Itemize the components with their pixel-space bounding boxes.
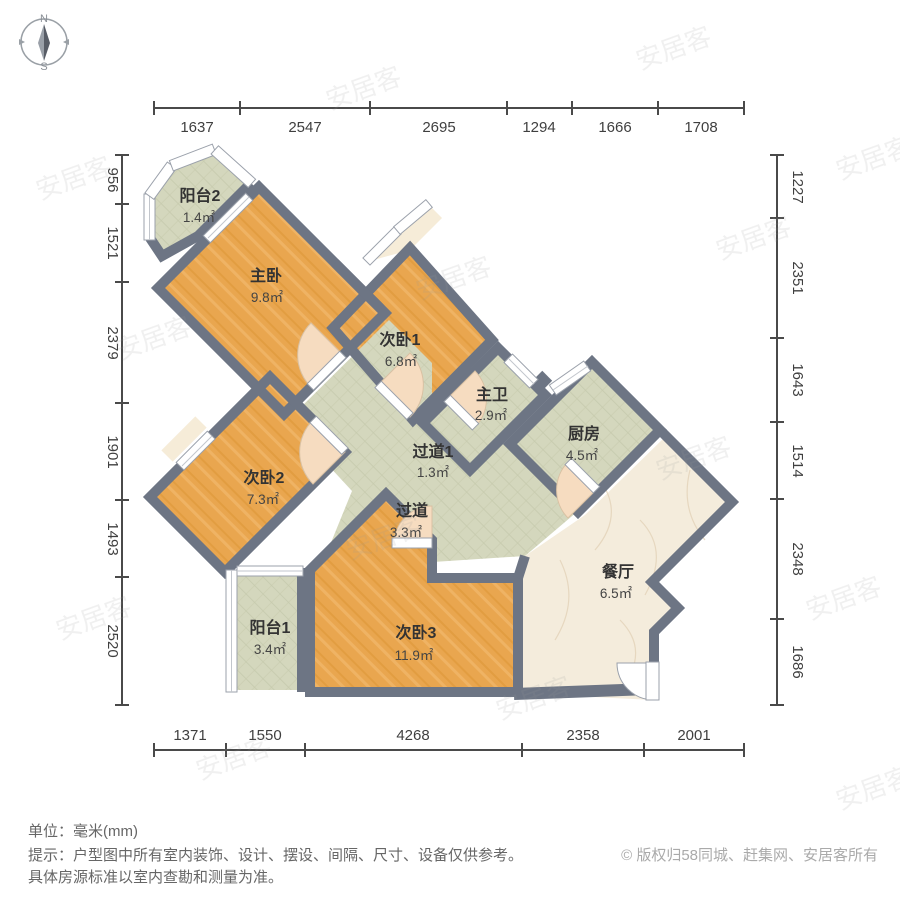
compass: N S — [19, 13, 69, 73]
dim-label: 1493 — [104, 522, 121, 555]
room-area-balcony1: 3.4㎡ — [254, 642, 287, 657]
dimension-top-labels: 1637 2547 2695 1294 1666 1708 — [180, 119, 717, 136]
dim-label: 1371 — [173, 727, 206, 744]
room-label-bedroom1: 次卧1 — [380, 330, 421, 349]
dim-label: 1686 — [789, 645, 806, 678]
room-label-balcony1: 阳台1 — [250, 618, 291, 637]
room-label-dining: 餐厅 — [601, 562, 634, 581]
dim-label: 2547 — [288, 119, 321, 136]
dim-label: 1643 — [789, 363, 806, 396]
dim-label: 1666 — [598, 119, 631, 136]
dim-label: 1521 — [104, 226, 121, 259]
dim-label: 4268 — [396, 727, 429, 744]
dim-label: 1294 — [522, 119, 555, 136]
compass-south-label: S — [40, 61, 47, 73]
watermark-text: 安居客 — [32, 151, 116, 206]
room-label-kitchen: 厨房 — [568, 424, 600, 443]
floorplan-svg: N S 1637 2547 2695 1294 1666 1708 956 15… — [0, 0, 900, 900]
dimension-left-labels: 956 1521 2379 1901 1493 2520 — [104, 167, 121, 657]
dim-label: 2001 — [677, 727, 710, 744]
dim-label: 1637 — [180, 119, 213, 136]
footer: 单位：毫米(mm) 提示：户型图中所有室内装饰、设计、摆设、间隔、尺寸、设备仅供… — [28, 822, 878, 886]
watermark-text: 安居客 — [712, 211, 796, 266]
room-area-kitchen: 4.5㎡ — [566, 448, 599, 463]
dim-label: 1227 — [789, 170, 806, 203]
room-label-corridor1: 过道1 — [413, 442, 454, 461]
room-label-master-bath: 主卫 — [476, 385, 508, 404]
dim-label: 2695 — [422, 119, 455, 136]
dim-label: 1708 — [684, 119, 717, 136]
dim-label: 2358 — [566, 727, 599, 744]
room-label-balcony2: 阳台2 — [180, 186, 221, 205]
room-area-bedroom2: 7.3㎡ — [247, 492, 280, 507]
watermark-text: 安居客 — [802, 571, 886, 626]
room-area-master-bath: 2.9㎡ — [475, 408, 508, 423]
dimension-top — [154, 101, 744, 115]
window-balcony1-top — [237, 566, 303, 576]
room-area-balcony2: 1.4㎡ — [183, 210, 216, 225]
room-area-master-bedroom: 9.8㎡ — [251, 290, 284, 305]
room-label-bedroom3: 次卧3 — [396, 623, 437, 642]
room-area-corridor1: 1.3㎡ — [417, 465, 450, 480]
compass-arrow-west-icon — [19, 39, 25, 45]
watermark-text: 安居客 — [112, 311, 196, 366]
footer-copyright: © 版权归58同城、赶集网、安居客所有 — [621, 847, 878, 864]
room-label-master-bedroom: 主卧 — [250, 266, 282, 285]
door-leaf — [646, 662, 659, 700]
room-label-bedroom2: 次卧2 — [244, 468, 285, 487]
compass-arrow-east-icon — [63, 39, 69, 45]
wall-dining-stub — [518, 556, 525, 578]
dim-label: 2351 — [789, 261, 806, 294]
compass-needle-west — [38, 24, 44, 61]
dim-label: 2348 — [789, 542, 806, 575]
compass-needle-east — [44, 24, 50, 61]
footer-tip-line2: 具体房源标准以室内查勘和测量为准。 — [28, 869, 283, 886]
room-area-bedroom3: 11.9㎡ — [395, 648, 434, 663]
watermark-text: 安居客 — [832, 761, 900, 816]
room-area-bedroom1: 6.8㎡ — [385, 354, 418, 369]
window-balcony1-west — [226, 570, 237, 692]
footer-tip-line1: 提示：户型图中所有室内装饰、设计、摆设、间隔、尺寸、设备仅供参考。 — [28, 847, 523, 864]
footer-unit: 单位：毫米(mm) — [28, 822, 138, 840]
watermark-text: 安居客 — [832, 131, 900, 186]
room-area-dining: 6.5㎡ — [600, 586, 633, 601]
compass-north-label: N — [40, 13, 48, 25]
dim-label: 1514 — [789, 444, 806, 477]
watermark-text: 安居客 — [632, 21, 716, 76]
dim-label: 1901 — [104, 435, 121, 468]
